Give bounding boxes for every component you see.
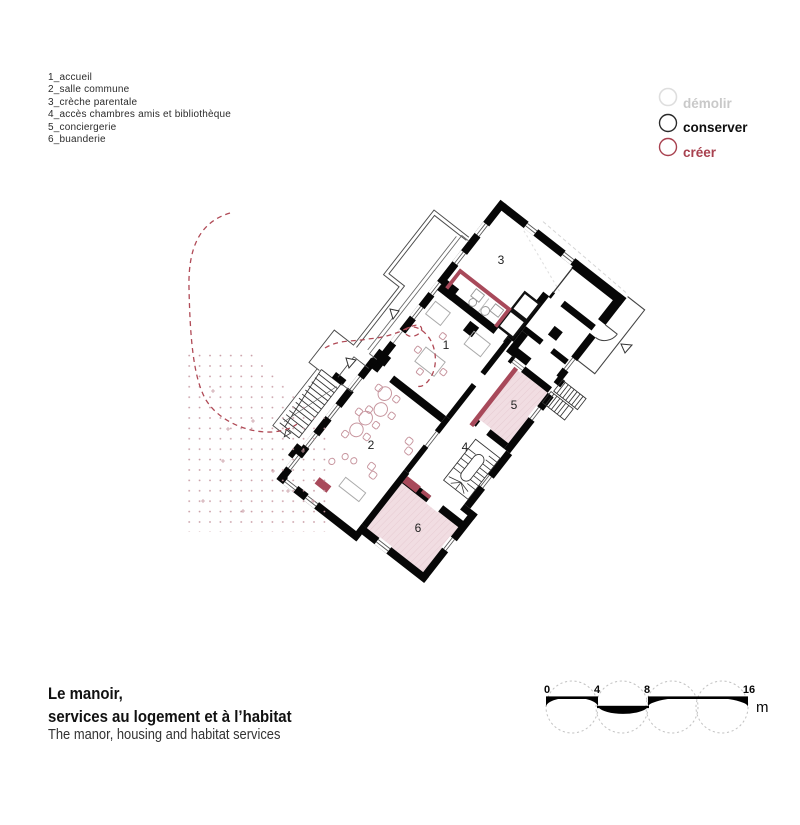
svg-text:0: 0 — [544, 684, 550, 696]
svg-text:3: 3 — [498, 253, 505, 267]
svg-text:2: 2 — [368, 438, 375, 452]
svg-text:6: 6 — [415, 521, 422, 535]
svg-text:8: 8 — [644, 684, 650, 696]
svg-text:5: 5 — [511, 398, 518, 412]
svg-text:4: 4 — [594, 684, 601, 696]
svg-text:4: 4 — [462, 440, 469, 454]
svg-text:16: 16 — [743, 684, 755, 696]
svg-text:1: 1 — [443, 338, 450, 352]
svg-text:m: m — [756, 699, 769, 716]
